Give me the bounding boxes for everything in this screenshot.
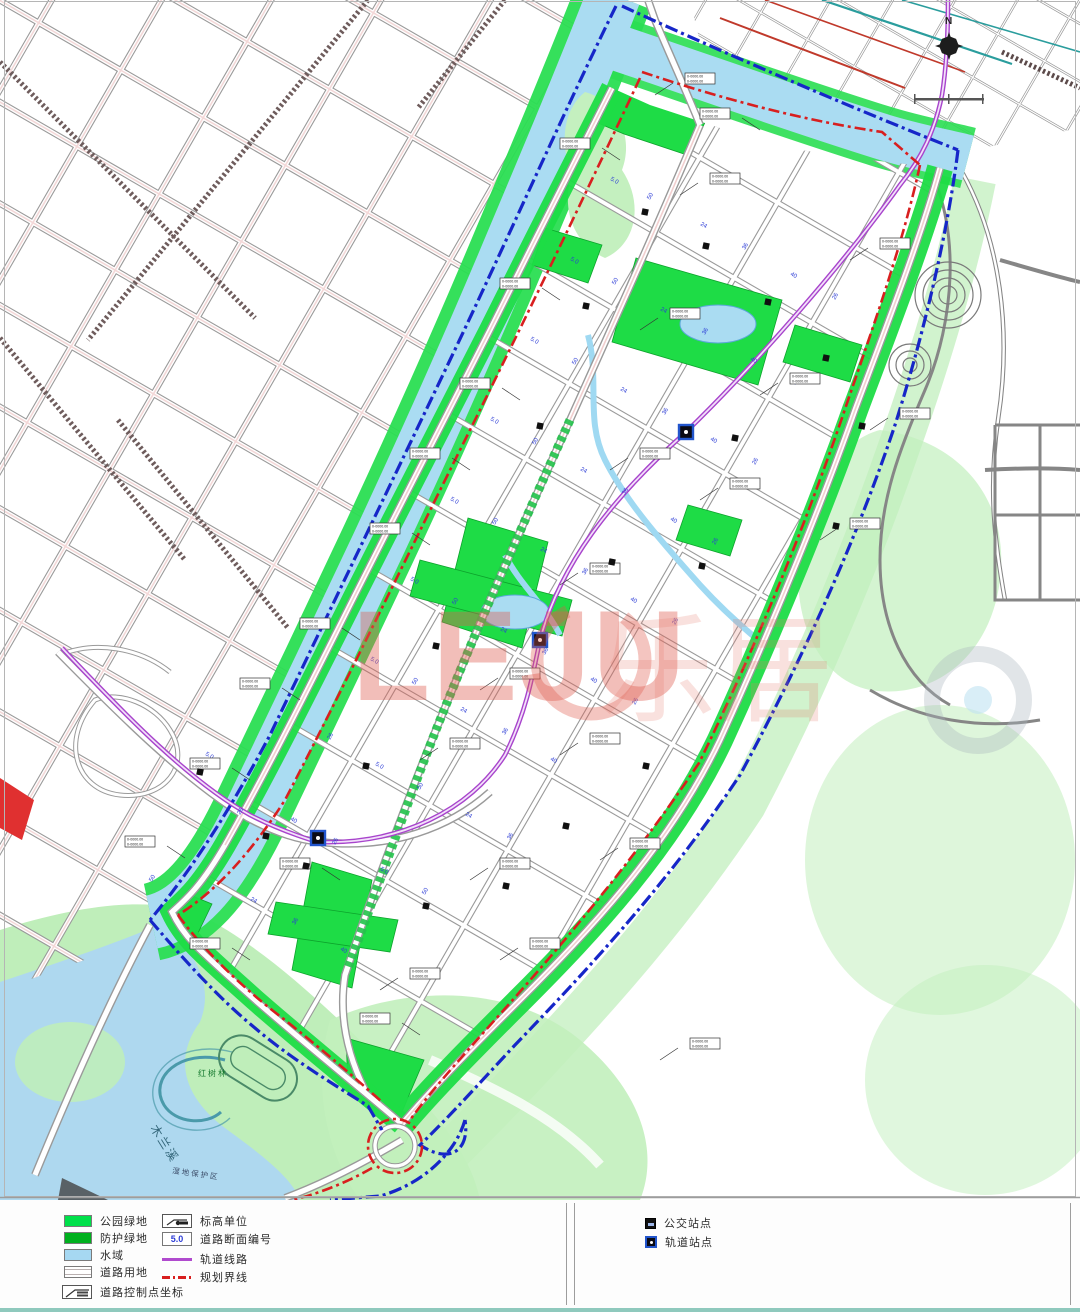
svg-text:0-0000.00: 0-0000.00 <box>502 280 518 284</box>
svg-text:0-0000.00: 0-0000.00 <box>732 485 748 489</box>
road-width-label: 5.0 <box>529 337 540 347</box>
road-width-label: 5.0 <box>449 497 460 507</box>
control-point-icon <box>62 1285 92 1299</box>
legend-label: 标高单位 <box>200 1213 248 1229</box>
road-width-label: 24 <box>579 467 588 476</box>
svg-text:0-0000.00: 0-0000.00 <box>702 115 718 119</box>
legend-item-rail-line: 轨道线路 <box>162 1252 248 1266</box>
watermark-cjk: 乐居 <box>598 606 834 738</box>
svg-text:0-0000.00: 0-0000.00 <box>412 970 428 974</box>
svg-text:0-0000.00: 0-0000.00 <box>852 525 868 529</box>
bus-stop-marker <box>422 902 430 910</box>
svg-text:0-0000.00: 0-0000.00 <box>502 285 518 289</box>
bus-stop-marker <box>832 522 840 530</box>
legend-label: 公园绿地 <box>100 1213 148 1229</box>
road-width-label: 50 <box>612 277 621 286</box>
svg-text:0-0000.00: 0-0000.00 <box>672 315 688 319</box>
road-land-swatch <box>64 1266 92 1278</box>
svg-text:0-0000.00: 0-0000.00 <box>902 415 918 419</box>
water-swatch <box>64 1249 92 1261</box>
compass <box>914 32 984 104</box>
bus-stop-marker <box>362 762 370 770</box>
bus-stop-marker <box>302 862 310 870</box>
legend-label: 水域 <box>100 1247 124 1263</box>
svg-text:0-0000.00: 0-0000.00 <box>362 1015 378 1019</box>
bus-stop-marker <box>702 242 710 250</box>
bus-stop-marker <box>731 434 739 442</box>
svg-text:0-0000.00: 0-0000.00 <box>792 380 808 384</box>
svg-text:0-0000.00: 0-0000.00 <box>462 380 478 384</box>
legend-item-elevation-unit: 标高单位 <box>162 1214 248 1228</box>
svg-text:0-0000.00: 0-0000.00 <box>562 140 578 144</box>
bus-stop-marker <box>196 768 204 776</box>
road-width-label: 24 <box>619 387 628 396</box>
svg-text:0-0000.00: 0-0000.00 <box>632 845 648 849</box>
road-width-label: 26 <box>832 292 841 301</box>
legend-label: 轨道线路 <box>200 1251 248 1267</box>
legend-item-control-point: 道路控制点坐标 <box>62 1285 184 1299</box>
protect-green-swatch <box>64 1232 92 1244</box>
svg-text:0-0000.00: 0-0000.00 <box>192 945 208 949</box>
svg-text:0-0000.00: 0-0000.00 <box>562 145 578 149</box>
road-width-label: 24 <box>699 222 708 231</box>
road-width-label: 36 <box>582 567 591 576</box>
svg-text:0-0000.00: 0-0000.00 <box>882 240 898 244</box>
road-width-label: 5.0 <box>489 417 500 427</box>
planning-map-svg: 5.050243640265.050243640265.050243640265… <box>0 0 1080 1200</box>
bottom-color-strip <box>0 1308 1080 1312</box>
road-width-label: 40 <box>789 272 798 281</box>
bus-stop-marker <box>582 302 590 310</box>
road-width-label: 26 <box>752 457 761 466</box>
road-width-label: 36 <box>502 727 511 736</box>
road-width-label: 50 <box>647 192 656 201</box>
legend-item-water: 水域 <box>64 1248 124 1262</box>
planning-boundary-swatch <box>162 1276 192 1279</box>
legend-item-road-land: 道路用地 <box>64 1265 148 1279</box>
legend-divider-2 <box>574 1203 575 1305</box>
svg-text:0-0000.00: 0-0000.00 <box>412 455 428 459</box>
svg-text:0-0000.00: 0-0000.00 <box>302 620 318 624</box>
svg-text:0-0000.00: 0-0000.00 <box>692 1040 708 1044</box>
road-width-label: 24 <box>464 812 473 821</box>
svg-text:0-0000.00: 0-0000.00 <box>412 450 428 454</box>
svg-text:0-0000.00: 0-0000.00 <box>242 685 258 689</box>
bus-stop-marker <box>608 558 616 566</box>
legend-label: 道路断面编号 <box>200 1231 272 1247</box>
svg-text:0-0000.00: 0-0000.00 <box>242 680 258 684</box>
svg-text:0-0000.00: 0-0000.00 <box>127 843 143 847</box>
svg-text:0-0000.00: 0-0000.00 <box>902 410 918 414</box>
bus-stop-marker <box>641 208 649 216</box>
svg-text:0-0000.00: 0-0000.00 <box>732 480 748 484</box>
legend-divider <box>566 1203 567 1305</box>
bus-stop-marker <box>698 562 706 570</box>
svg-text:0-0000.00: 0-0000.00 <box>712 175 728 179</box>
legend-label: 规划界线 <box>200 1269 248 1285</box>
legend-label: 轨道站点 <box>665 1234 713 1250</box>
bus-stop-marker <box>502 882 510 890</box>
legend-label: 公交站点 <box>664 1215 712 1231</box>
svg-text:0-0000.00: 0-0000.00 <box>642 450 658 454</box>
svg-text:0-0000.00: 0-0000.00 <box>592 740 608 744</box>
svg-text:0-0000.00: 0-0000.00 <box>792 375 808 379</box>
planning-map-page: 5.050243640265.050243640265.050243640265… <box>0 0 1080 1312</box>
bus-stop-icon <box>645 1218 656 1229</box>
svg-text:0-0000.00: 0-0000.00 <box>362 1020 378 1024</box>
stamp-dot <box>964 686 992 714</box>
svg-text:0-0000.00: 0-0000.00 <box>532 945 548 949</box>
bus-stop-marker <box>536 422 544 430</box>
elevation-unit-icon <box>162 1214 192 1228</box>
legend-item-section-number: 5.0 道路断面编号 <box>162 1232 272 1246</box>
svg-text:0-0000.00: 0-0000.00 <box>692 1045 708 1049</box>
legend-item-park-green: 公园绿地 <box>64 1214 148 1228</box>
pale-blob-2 <box>805 705 1075 1015</box>
legend-item-protect-green: 防护绿地 <box>64 1231 148 1245</box>
svg-text:0-0000.00: 0-0000.00 <box>452 745 468 749</box>
svg-text:0-0000.00: 0-0000.00 <box>712 180 728 184</box>
svg-text:0-0000.00: 0-0000.00 <box>702 110 718 114</box>
svg-text:0-0000.00: 0-0000.00 <box>592 565 608 569</box>
bus-stop-marker <box>858 422 866 430</box>
legend-label: 防护绿地 <box>100 1230 148 1246</box>
svg-text:0-0000.00: 0-0000.00 <box>282 865 298 869</box>
svg-text:0-0000.00: 0-0000.00 <box>672 310 688 314</box>
bus-stop-marker <box>764 298 772 306</box>
svg-text:0-0000.00: 0-0000.00 <box>372 530 388 534</box>
svg-text:0-0000.00: 0-0000.00 <box>882 245 898 249</box>
road-width-label: 36 <box>662 407 671 416</box>
svg-text:0-0000.00: 0-0000.00 <box>632 840 648 844</box>
road-width-label: 40 <box>669 517 678 526</box>
svg-text:0-0000.00: 0-0000.00 <box>532 940 548 944</box>
map-place-label: 红树林 <box>198 1068 228 1078</box>
road-width-label: 40 <box>709 437 718 446</box>
svg-text:0-0000.00: 0-0000.00 <box>372 525 388 529</box>
compass-n-label: N <box>945 16 952 27</box>
section-number-icon: 5.0 <box>162 1232 192 1246</box>
legend-panel: 公园绿地 防护绿地 水域 道路用地 道路控制点坐标 标高单位 5.0 <box>0 1200 1080 1308</box>
rail-station-icon <box>645 1236 657 1248</box>
bus-stop-marker <box>642 762 650 770</box>
svg-text:0-0000.00: 0-0000.00 <box>192 765 208 769</box>
svg-text:0-0000.00: 0-0000.00 <box>592 570 608 574</box>
bus-stop-marker <box>262 832 270 840</box>
svg-text:0-0000.00: 0-0000.00 <box>642 455 658 459</box>
bus-stop-marker <box>562 822 570 830</box>
road-width-label: 5.0 <box>374 762 385 772</box>
legend-item-planning-boundary: 规划界线 <box>162 1270 248 1284</box>
svg-text:0-0000.00: 0-0000.00 <box>462 385 478 389</box>
svg-text:0-0000.00: 0-0000.00 <box>302 625 318 629</box>
svg-text:0-0000.00: 0-0000.00 <box>127 838 143 842</box>
rail-line-swatch <box>162 1258 192 1261</box>
svg-text:0-0000.00: 0-0000.00 <box>452 740 468 744</box>
road-width-label: 50 <box>422 887 431 896</box>
svg-text:0-0000.00: 0-0000.00 <box>192 940 208 944</box>
bus-stop-marker <box>822 354 830 362</box>
legend-divider-right <box>1070 1203 1071 1305</box>
legend-label: 道路用地 <box>100 1264 148 1280</box>
svg-text:0-0000.00: 0-0000.00 <box>852 520 868 524</box>
park-green-swatch <box>64 1215 92 1227</box>
legend-item-rail-station: 轨道站点 <box>645 1235 713 1249</box>
svg-text:0-0000.00: 0-0000.00 <box>412 975 428 979</box>
legend-item-bus-stop: 公交站点 <box>645 1216 712 1230</box>
map-canvas: 5.050243640265.050243640265.050243640265… <box>0 0 1080 1200</box>
legend-label: 道路控制点坐标 <box>100 1284 184 1300</box>
svg-text:0-0000.00: 0-0000.00 <box>502 865 518 869</box>
svg-text:0-0000.00: 0-0000.00 <box>687 80 703 84</box>
svg-text:0-0000.00: 0-0000.00 <box>502 860 518 864</box>
svg-text:0-0000.00: 0-0000.00 <box>192 760 208 764</box>
svg-text:0-0000.00: 0-0000.00 <box>687 75 703 79</box>
svg-text:0-0000.00: 0-0000.00 <box>282 860 298 864</box>
